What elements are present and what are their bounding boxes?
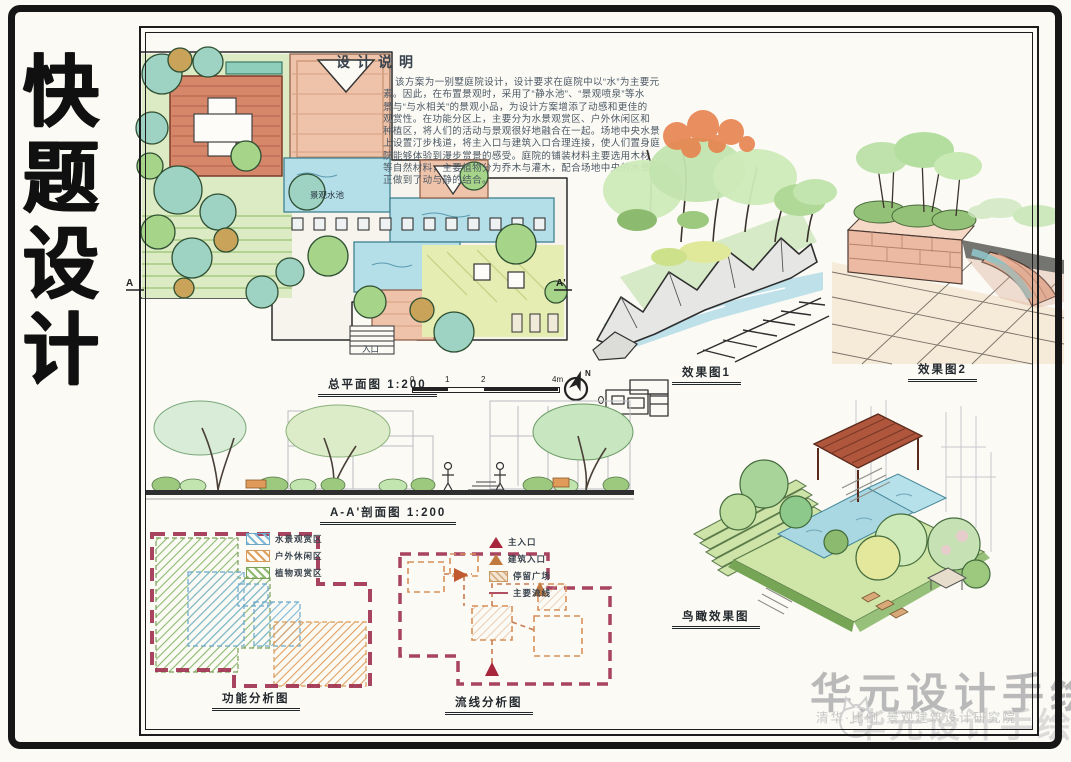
board-title-vertical: 快 题 设 计 xyxy=(12,50,110,394)
entry-arrow xyxy=(454,568,468,582)
main-entrance-marker xyxy=(485,662,499,676)
circulation-legend: 主入口 建筑入口 停留广场 主要流线 xyxy=(489,536,551,599)
scale-tick: 0 xyxy=(410,375,414,384)
main-entrance-swatch xyxy=(489,537,503,548)
water-zone-swatch xyxy=(246,533,270,545)
watermark-overlay: 华元设计手绘 xyxy=(852,698,1071,747)
legend-item: 停留广场 xyxy=(489,570,551,582)
perspective-1-caption: 效果图1 xyxy=(672,364,741,385)
notes-line: 该方案为一别墅庭院设计，设计要求在庭院中以“水”为主要元 xyxy=(383,77,619,89)
legend-item: 建筑入口 xyxy=(489,553,551,565)
title-char-2: 题 xyxy=(23,135,99,223)
background-shrubs xyxy=(968,198,1061,227)
svg-text:N: N xyxy=(585,369,591,378)
people-figures xyxy=(442,463,506,493)
notes-line: 正做到了动与静的结合。 xyxy=(383,175,619,187)
legend-item: 植物观赏区 xyxy=(246,567,323,579)
ground-line xyxy=(146,490,634,495)
design-notes-heading: 设计说明 xyxy=(336,52,420,72)
title-char-3: 设 xyxy=(23,221,99,309)
leisure-zone-swatch xyxy=(246,550,270,562)
legend-item: 户外休闲区 xyxy=(246,550,323,562)
function-legend: 水景观赏区 户外休闲区 植物观赏区 xyxy=(246,533,323,579)
notes-line: 等自然材料，主要植物分为乔木与灌木，配合场地中央的水景真 xyxy=(383,163,619,175)
title-char-4: 计 xyxy=(23,307,99,395)
function-analysis-caption: 功能分析图 xyxy=(212,690,300,711)
plan-section-marker-a: A xyxy=(126,278,133,289)
perspective-1-drawing xyxy=(585,92,830,364)
plaza-swatch xyxy=(489,571,508,582)
design-notes-body: 该方案为一别墅庭院设计，设计要求在庭院中以“水”为主要元 素。因此，在布置景观时… xyxy=(383,77,619,188)
notes-line: 景与“与水相关”的景观小品，为设计方案增添了动感和更佳的 xyxy=(383,102,619,114)
notes-line: 观赏性。在功能分区上，主要分为水景观赏区、户外休闲区和 xyxy=(383,114,619,126)
notes-line: 上设置汀步栈道，将主入口与建筑入口合理连接，使人们置身庭 xyxy=(383,138,619,150)
perspective-2-drawing xyxy=(832,112,1064,364)
notes-line: 素。因此，在布置景观时，采用了“静水池”、“景观喷泉”等水 xyxy=(383,89,619,101)
legend-item: 水景观赏区 xyxy=(246,533,323,545)
notes-line: 院能够体验到漫步赏景的感受。庭院的铺装材料主要选用木材 xyxy=(383,151,619,163)
scale-tick: 2 xyxy=(481,375,485,384)
plant-zone-swatch xyxy=(246,567,270,579)
building-entrance-swatch xyxy=(489,554,503,565)
circulation-analysis-caption: 流线分析图 xyxy=(445,694,533,715)
plan-building-roof xyxy=(170,76,282,176)
section-drawing xyxy=(138,386,643,511)
legend-item: 主要流线 xyxy=(489,587,551,599)
title-char-1: 快 xyxy=(23,49,99,137)
zone-leisure xyxy=(274,622,366,686)
zone-water-1 xyxy=(188,572,244,646)
scale-tick: 1 xyxy=(445,375,449,384)
perspective-2-caption: 效果图2 xyxy=(908,361,977,382)
cat-logo-icon xyxy=(832,694,880,742)
birdseye-caption: 鸟瞰效果图 xyxy=(672,608,760,629)
plan-entrance-label: 入口 xyxy=(362,344,379,354)
legend-item: 主入口 xyxy=(489,536,551,548)
plan-water-label: 景观水池 xyxy=(310,190,345,200)
plan-section-marker-a2: A' xyxy=(556,278,566,289)
notes-line: 种植区，将人们的活动与景观很好地融合在一起。场地中央水景 xyxy=(383,126,619,138)
flow-line-swatch xyxy=(489,592,508,594)
